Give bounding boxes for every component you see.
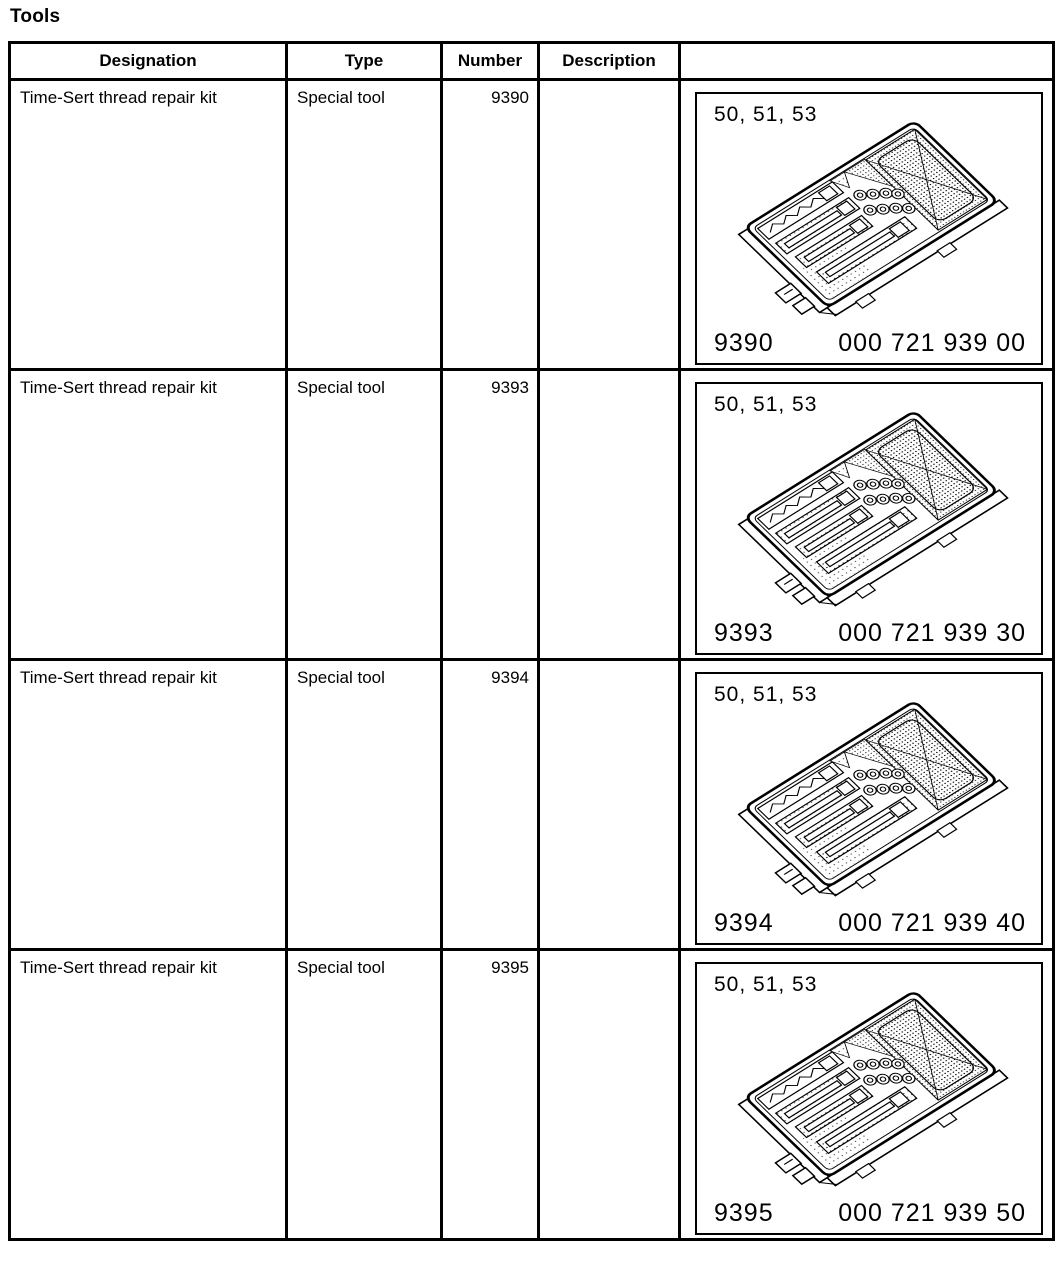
page-title: Tools xyxy=(10,6,1052,28)
figure-part-number: 000 721 939 30 xyxy=(838,619,1026,648)
tool-kit-illustration xyxy=(697,674,1041,943)
table-row: Time-Sert thread repair kit Special tool… xyxy=(10,370,1054,660)
figure-tool-number: 9395 xyxy=(714,1199,774,1228)
figure-footer: 9390 000 721 939 00 xyxy=(714,329,1026,358)
header-designation: Designation xyxy=(10,43,287,80)
description-cell xyxy=(539,950,680,1240)
number-cell: 9393 xyxy=(442,370,539,660)
figure-footer: 9394 000 721 939 40 xyxy=(714,909,1026,938)
designation-cell: Time-Sert thread repair kit xyxy=(10,370,287,660)
designation-cell: Time-Sert thread repair kit xyxy=(10,950,287,1240)
figure-caption: 50, 51, 53 xyxy=(714,683,817,707)
tools-table: Designation Type Number Description Time… xyxy=(8,41,1055,1241)
figure-footer: 9395 000 721 939 50 xyxy=(714,1199,1026,1228)
figure-caption: 50, 51, 53 xyxy=(714,393,817,417)
figure-tool-number: 9393 xyxy=(714,619,774,648)
table-row: Time-Sert thread repair kit Special tool… xyxy=(10,950,1054,1240)
number-cell: 9394 xyxy=(442,660,539,950)
figure-frame: 50, 51, 53 9390 000 721 939 00 xyxy=(695,92,1043,365)
description-cell xyxy=(539,80,680,370)
figure-cell: 50, 51, 53 9395 000 721 939 50 xyxy=(680,950,1054,1240)
type-cell: Special tool xyxy=(287,370,442,660)
table-row: Time-Sert thread repair kit Special tool… xyxy=(10,80,1054,370)
figure-frame: 50, 51, 53 9395 000 721 939 50 xyxy=(695,962,1043,1235)
figure-frame: 50, 51, 53 9393 000 721 939 30 xyxy=(695,382,1043,655)
figure-cell: 50, 51, 53 9393 000 721 939 30 xyxy=(680,370,1054,660)
figure-cell: 50, 51, 53 9394 000 721 939 40 xyxy=(680,660,1054,950)
header-number: Number xyxy=(442,43,539,80)
header-figure xyxy=(680,43,1054,80)
table-row: Time-Sert thread repair kit Special tool… xyxy=(10,660,1054,950)
tool-kit-illustration xyxy=(697,964,1041,1233)
type-cell: Special tool xyxy=(287,950,442,1240)
designation-cell: Time-Sert thread repair kit xyxy=(10,660,287,950)
figure-frame: 50, 51, 53 9394 000 721 939 40 xyxy=(695,672,1043,945)
figure-caption: 50, 51, 53 xyxy=(714,103,817,127)
figure-part-number: 000 721 939 40 xyxy=(838,909,1026,938)
figure-cell: 50, 51, 53 9390 000 721 939 00 xyxy=(680,80,1054,370)
figure-tool-number: 9390 xyxy=(714,329,774,358)
header-description: Description xyxy=(539,43,680,80)
number-cell: 9395 xyxy=(442,950,539,1240)
designation-cell: Time-Sert thread repair kit xyxy=(10,80,287,370)
figure-caption: 50, 51, 53 xyxy=(714,973,817,997)
type-cell: Special tool xyxy=(287,660,442,950)
description-cell xyxy=(539,370,680,660)
table-header-row: Designation Type Number Description xyxy=(10,43,1054,80)
description-cell xyxy=(539,660,680,950)
type-cell: Special tool xyxy=(287,80,442,370)
figure-part-number: 000 721 939 50 xyxy=(838,1199,1026,1228)
number-cell: 9390 xyxy=(442,80,539,370)
document-page: Tools Designation Type Number Descriptio… xyxy=(0,0,1060,1276)
tool-kit-illustration xyxy=(697,384,1041,653)
figure-footer: 9393 000 721 939 30 xyxy=(714,619,1026,648)
figure-tool-number: 9394 xyxy=(714,909,774,938)
tool-kit-illustration xyxy=(697,94,1041,363)
figure-part-number: 000 721 939 00 xyxy=(838,329,1026,358)
header-type: Type xyxy=(287,43,442,80)
